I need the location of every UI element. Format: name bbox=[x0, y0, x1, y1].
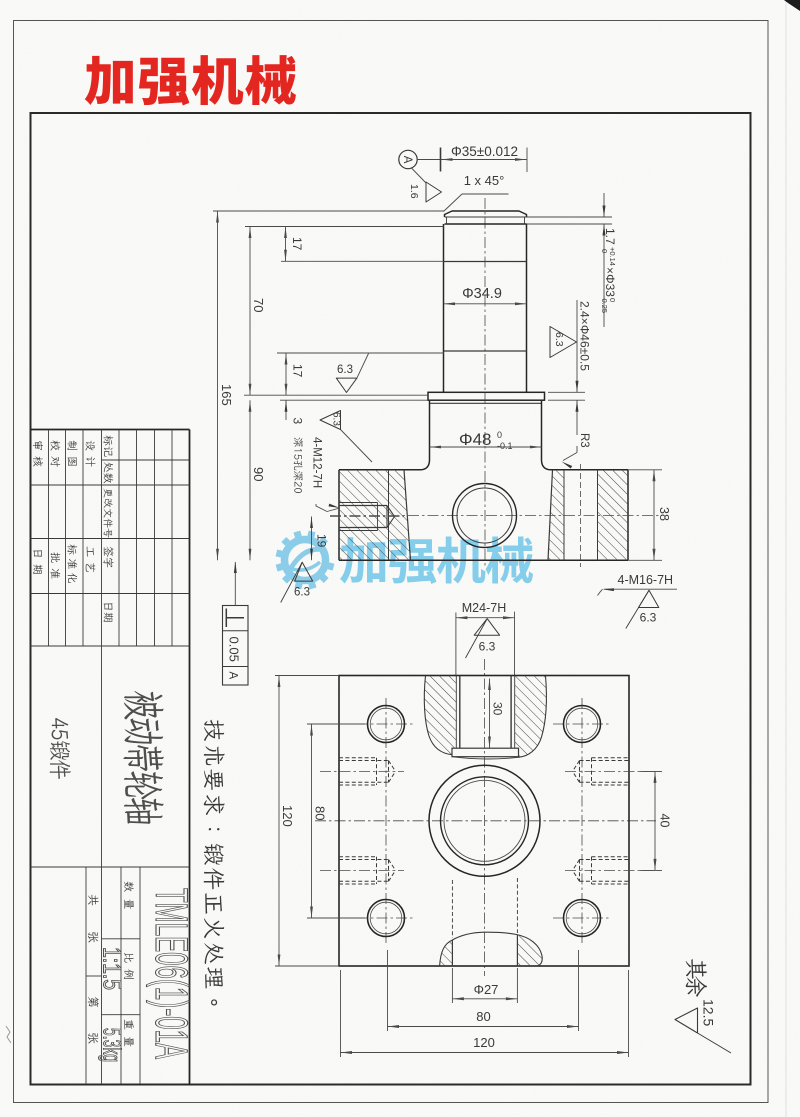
svg-text:120: 120 bbox=[280, 805, 295, 827]
svg-text:0: 0 bbox=[600, 249, 609, 253]
svg-text:Φ27: Φ27 bbox=[474, 982, 499, 997]
svg-text:M24-7H: M24-7H bbox=[462, 601, 506, 615]
svg-text:12.5: 12.5 bbox=[701, 999, 717, 1026]
svg-text:80: 80 bbox=[313, 806, 328, 820]
svg-text:1:1.5: 1:1.5 bbox=[98, 947, 126, 990]
svg-text:Φ34.9: Φ34.9 bbox=[462, 286, 502, 302]
svg-text:19: 19 bbox=[315, 534, 329, 548]
svg-text:-0.25: -0.25 bbox=[600, 296, 609, 313]
svg-text:4-M16-7H: 4-M16-7H bbox=[618, 573, 674, 587]
svg-text:6.3: 6.3 bbox=[640, 611, 657, 625]
svg-text:×Φ33: ×Φ33 bbox=[603, 267, 617, 297]
svg-text:2.4×Φ46±0.5: 2.4×Φ46±0.5 bbox=[578, 301, 592, 371]
svg-text:R3: R3 bbox=[578, 433, 590, 448]
svg-text:70: 70 bbox=[251, 298, 266, 312]
svg-text:6.3: 6.3 bbox=[479, 640, 496, 654]
svg-text:4-M12-7H: 4-M12-7H bbox=[311, 437, 323, 488]
svg-text:90: 90 bbox=[251, 467, 266, 481]
svg-text:30: 30 bbox=[491, 702, 505, 716]
svg-text:0.05: 0.05 bbox=[227, 637, 242, 662]
svg-text:1.6: 1.6 bbox=[408, 184, 420, 199]
svg-text:Φ48: Φ48 bbox=[459, 430, 491, 449]
svg-text:5.3kg: 5.3kg bbox=[98, 1028, 126, 1062]
svg-text:A: A bbox=[227, 672, 239, 680]
svg-text:120: 120 bbox=[473, 1035, 495, 1050]
svg-text:6.3: 6.3 bbox=[294, 587, 310, 599]
svg-text:165: 165 bbox=[219, 384, 234, 406]
svg-text:0: 0 bbox=[497, 430, 502, 440]
svg-text:3: 3 bbox=[291, 418, 305, 425]
svg-text:80: 80 bbox=[476, 1009, 490, 1024]
svg-text:17: 17 bbox=[290, 237, 304, 251]
svg-text:17: 17 bbox=[291, 364, 305, 378]
svg-text:38: 38 bbox=[657, 507, 671, 521]
svg-text:-0.1: -0.1 bbox=[497, 441, 513, 451]
svg-text:40: 40 bbox=[658, 814, 672, 828]
svg-text:6.3: 6.3 bbox=[331, 412, 342, 426]
svg-text:1.7: 1.7 bbox=[603, 228, 617, 245]
svg-text:6.3: 6.3 bbox=[337, 364, 353, 376]
svg-text:A: A bbox=[401, 156, 413, 164]
svg-text:6.3: 6.3 bbox=[553, 332, 565, 347]
svg-text:1 x 45°: 1 x 45° bbox=[464, 173, 505, 188]
svg-text:Φ35±0.012: Φ35±0.012 bbox=[451, 144, 518, 159]
svg-text:TMLE06(1)-01A: TMLE06(1)-01A bbox=[146, 888, 197, 1059]
